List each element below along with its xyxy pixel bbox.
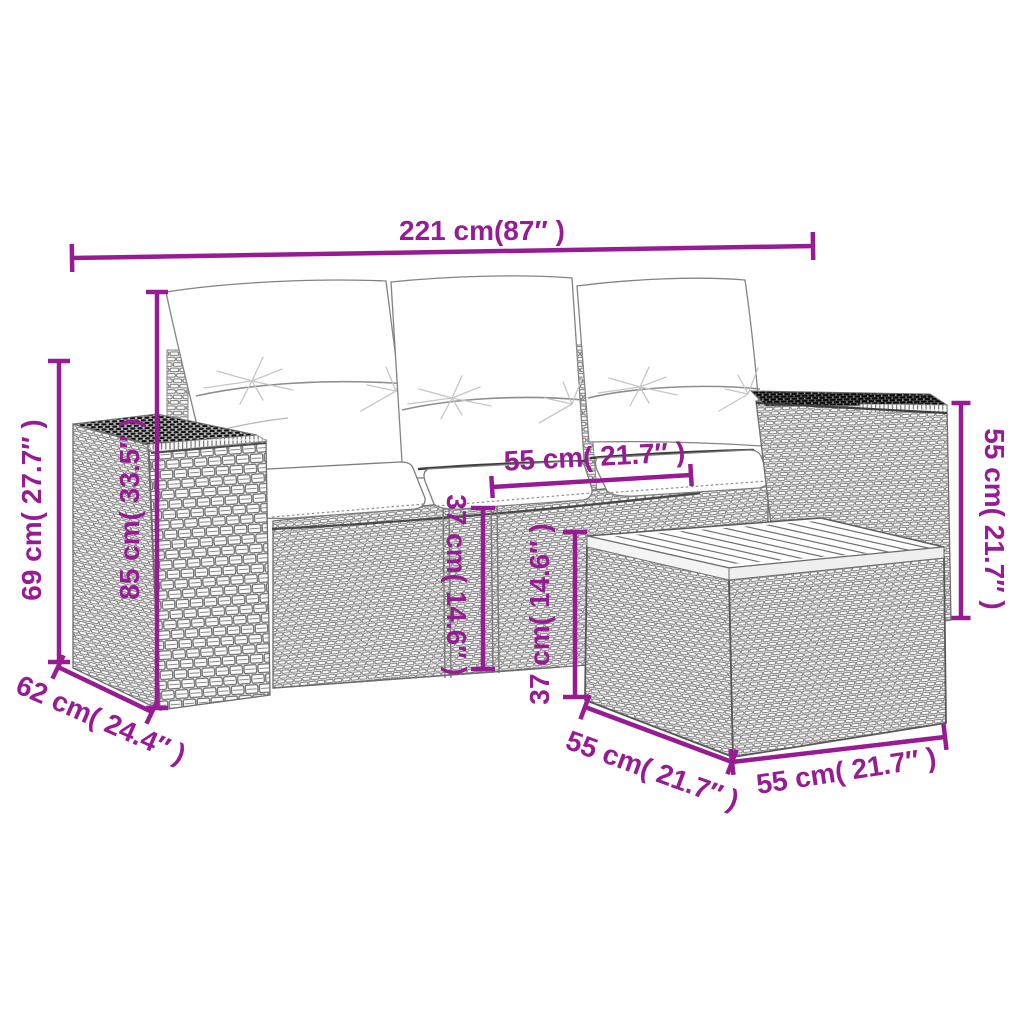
svg-text:221 cm(87″ ): 221 cm(87″ )	[399, 215, 565, 246]
svg-text:55 cm( 21.7″ ): 55 cm( 21.7″ )	[979, 428, 1010, 610]
svg-text:69 cm( 27.7″ ): 69 cm( 27.7″ )	[16, 419, 47, 601]
svg-text:37 cm( 14.6″ ): 37 cm( 14.6″ )	[441, 494, 472, 676]
svg-text:85 cm( 33.5″ ): 85 cm( 33.5″ )	[114, 418, 145, 600]
svg-text:37 cm( 14.6″ ): 37 cm( 14.6″ )	[524, 523, 555, 705]
